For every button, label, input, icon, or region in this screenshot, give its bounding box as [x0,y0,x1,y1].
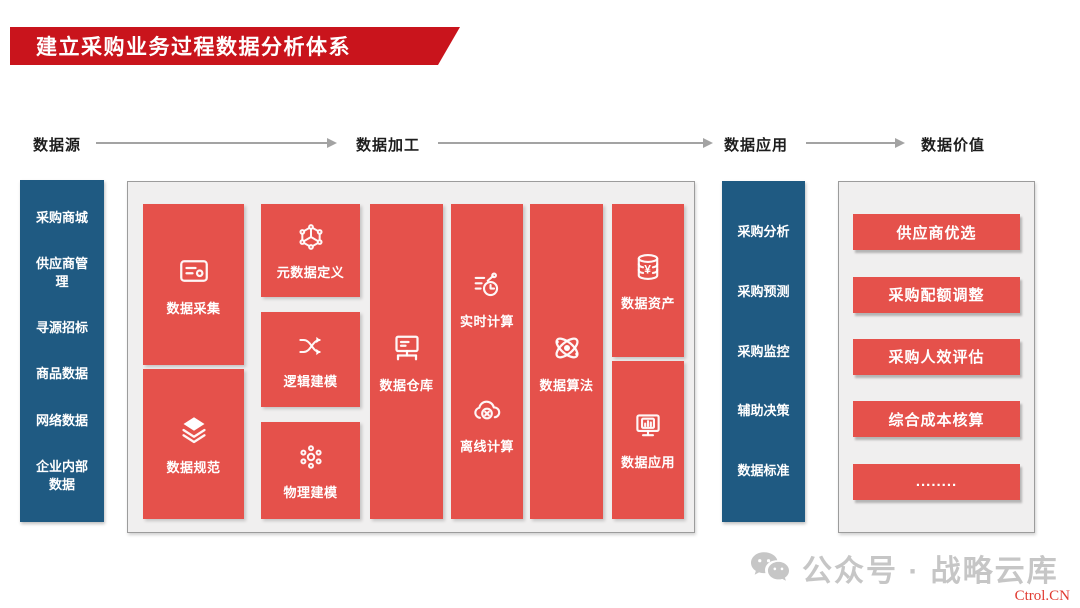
process-block-data-application: 数据应用 [612,361,684,519]
value-bar-label: 采购人效评估 [888,346,984,367]
value-bar: 采购配额调整 [853,277,1020,313]
application-item: 采购分析 [732,223,796,241]
offline-computing-group: 离线计算 [460,393,514,455]
molecule-icon [295,441,327,473]
flow-arrow-1 [96,142,328,144]
data-source-item: 供应商管理 [30,255,94,290]
value-bar-label: 采购配额调整 [888,284,984,305]
cloud-x-icon [470,393,504,427]
flow-step-data-source: 数据源 [33,134,81,155]
wechat-banner: 公众号 · 战略云库 [748,546,1059,590]
data-source-item: 网络数据 [30,412,94,430]
process-block-label: 数据资产 [621,293,675,312]
gauge-clock-icon [470,268,504,302]
data-sources-panel: 采购商城 供应商管理 寻源招标 商品数据 网络数据 企业内部数据 [20,180,104,522]
process-block-logic-modeling: 逻辑建模 [261,312,360,407]
process-block-data-standard: 数据规范 [143,369,244,519]
process-block-label: 数据规范 [166,457,220,476]
value-bar: ........ [853,464,1020,500]
wechat-icon [748,549,792,587]
flow-arrow-2 [438,142,704,144]
flow-arrow-3 [806,142,896,144]
coins-yen-icon: ¥ [631,250,665,284]
process-block-label: 元数据定义 [277,262,345,281]
shuffle-icon [295,330,327,362]
svg-text:¥: ¥ [644,262,651,276]
application-item: 数据标准 [732,462,796,480]
process-block-label: 数据应用 [621,452,675,471]
page-title-banner: 建立采购业务过程数据分析体系 [10,27,460,65]
value-bar: 采购人效评估 [853,339,1020,375]
data-source-item: 寻源招标 [30,319,94,337]
process-block-data-asset: ¥ 数据资产 [612,204,684,357]
watermark: Ctrol.CN [1015,588,1070,605]
data-value-panel: 供应商优选 采购配额调整 采购人效评估 综合成本核算 ........ [838,181,1035,533]
application-item: 辅助决策 [732,402,796,420]
process-block-label: 实时计算 [460,311,514,330]
realtime-computing-group: 实时计算 [460,268,514,330]
process-block-label: 数据采集 [166,298,220,317]
data-source-item: 企业内部数据 [30,458,94,493]
monitor-network-icon [389,330,425,366]
atom-icon [549,330,585,366]
process-block-label: 物理建模 [283,482,337,501]
flow-step-data-value: 数据价值 [921,134,985,155]
slide: 建立采购业务过程数据分析体系 数据源 数据加工 数据应用 数据价值 采购商城 供… [0,0,1080,608]
data-source-item: 采购商城 [30,209,94,227]
process-block-data-warehouse: 数据仓库 [370,204,443,519]
process-block-data-algorithm: 数据算法 [530,204,603,519]
process-block-physical-modeling: 物理建模 [261,422,360,519]
data-source-item: 商品数据 [30,365,94,383]
layers-icon [176,412,212,448]
process-block-label: 数据仓库 [379,375,433,394]
flow-step-data-application: 数据应用 [724,134,788,155]
application-item: 采购监控 [732,343,796,361]
wechat-label: 公众号 · 战略云库 [802,546,1059,590]
data-applications-panel: 采购分析 采购预测 采购监控 辅助决策 数据标准 [722,181,805,522]
value-bar-label: 综合成本核算 [888,409,984,430]
flow-step-data-processing: 数据加工 [356,134,420,155]
id-card-icon [176,253,212,289]
process-block-label: 数据算法 [539,375,593,394]
process-block-computing: 实时计算 离线计算 [451,204,523,519]
process-block-label: 离线计算 [460,436,514,455]
value-bar-label: 供应商优选 [896,222,976,243]
application-item: 采购预测 [732,283,796,301]
cube-network-icon [295,221,327,253]
process-block-label: 逻辑建模 [283,371,337,390]
process-block-data-collection: 数据采集 [143,204,244,365]
process-block-metadata-definition: 元数据定义 [261,204,360,297]
value-bar: 供应商优选 [853,214,1020,250]
page-title: 建立采购业务过程数据分析体系 [36,31,351,61]
monitor-chart-icon [631,409,665,443]
value-bar-label: ........ [916,473,957,490]
value-bar: 综合成本核算 [853,401,1020,437]
